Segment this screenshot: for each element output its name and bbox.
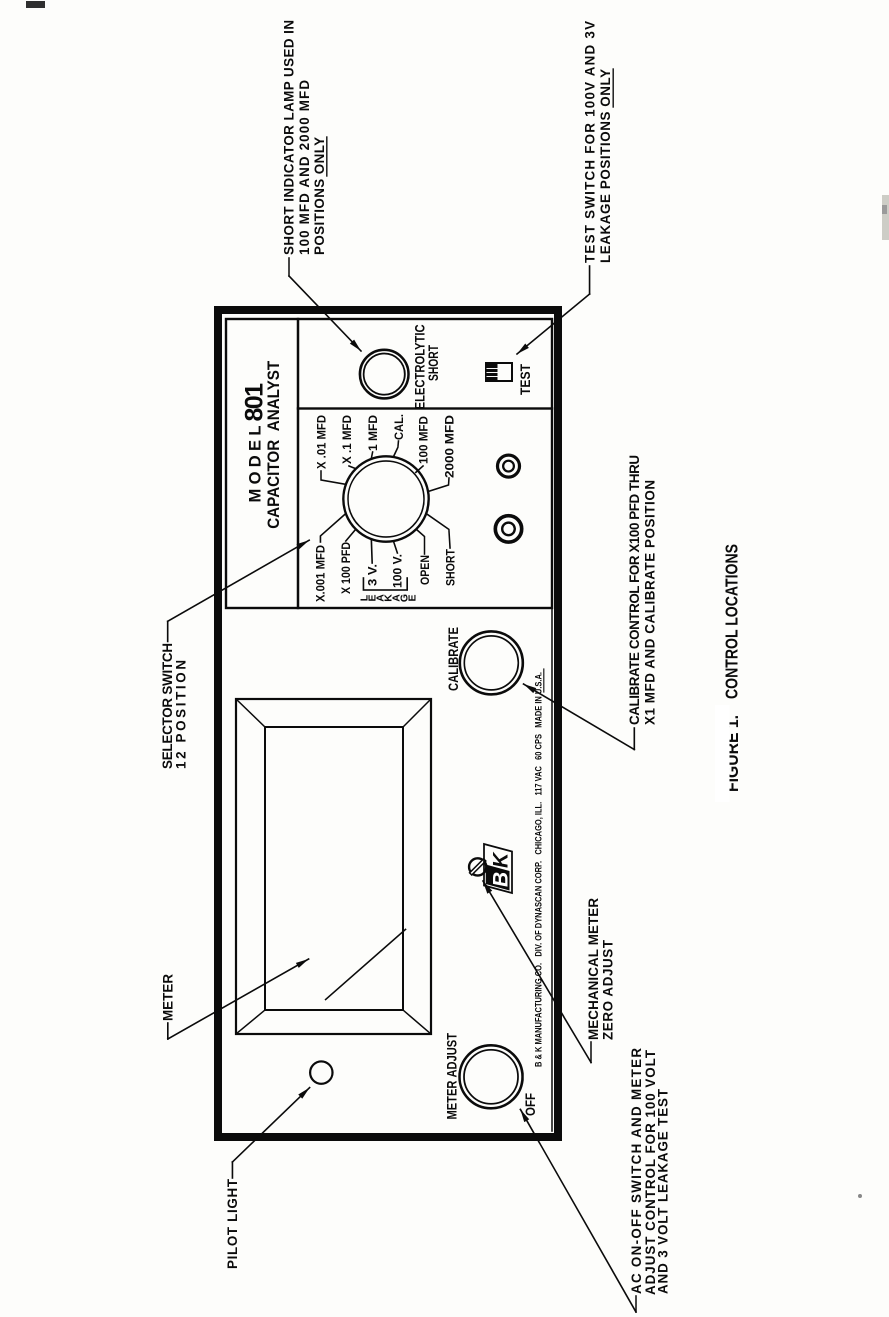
svg-text:1 MFD: 1 MFD xyxy=(366,415,380,451)
svg-text:12 POSITION: 12 POSITION xyxy=(174,660,189,769)
svg-text:AND 3 VOLT LEAKAGE TEST: AND 3 VOLT LEAKAGE TEST xyxy=(656,1088,671,1294)
svg-text:X 100 PFD: X 100 PFD xyxy=(339,542,353,594)
svg-text:CALIBRATE CONTROL FOR X100 PFD: CALIBRATE CONTROL FOR X100 PFD THRU xyxy=(627,455,642,725)
svg-text:K: K xyxy=(490,851,513,868)
svg-text:X .1 MFD: X .1 MFD xyxy=(340,415,354,464)
svg-text:TEST: TEST xyxy=(518,363,533,395)
svg-text:E: E xyxy=(407,594,419,601)
svg-text:B & K MANUFACTURING CO. DIV.: B & K MANUFACTURING CO. DIV. OF DYNASCAN… xyxy=(534,672,544,1067)
svg-text:3 V.: 3 V. xyxy=(366,564,380,586)
svg-text:2000 MFD: 2000 MFD xyxy=(442,415,456,478)
svg-text:OFF: OFF xyxy=(522,1093,538,1116)
svg-text:SHORT: SHORT xyxy=(443,548,457,586)
svg-text:CAL.: CAL. xyxy=(392,414,406,440)
svg-text:X1 MFD AND CALIBRATE POSITION: X1 MFD AND CALIBRATE POSITION xyxy=(643,480,658,725)
svg-text:TEST SWITCH FOR 100V AND 3V: TEST SWITCH FOR 100V AND 3V xyxy=(582,21,597,263)
svg-text:AC ON-OFF SWITCH AND METER: AC ON-OFF SWITCH AND METER xyxy=(629,1048,644,1294)
svg-text:X .01 MFD: X .01 MFD xyxy=(314,415,328,469)
svg-text:MODEL: MODEL xyxy=(246,426,265,503)
svg-text:PILOT LIGHT: PILOT LIGHT xyxy=(225,1178,240,1269)
svg-text:100 MFD: 100 MFD xyxy=(416,416,430,464)
svg-text:ZERO ADJUST: ZERO ADJUST xyxy=(600,939,615,1040)
svg-text:METER: METER xyxy=(161,974,176,1021)
svg-text:METER ADJUST: METER ADJUST xyxy=(444,1033,460,1120)
svg-text:CALIBRATE: CALIBRATE xyxy=(445,627,461,691)
svg-text:B: B xyxy=(490,872,513,887)
svg-text:SHORT INDICATOR LAMP USED IN: SHORT INDICATOR LAMP USED IN xyxy=(281,20,296,255)
svg-text:100 V.: 100 V. xyxy=(391,554,405,588)
svg-text:100 MFD AND 2000 MFD: 100 MFD AND 2000 MFD xyxy=(297,80,312,255)
svg-text:POSITIONS ONLY: POSITIONS ONLY xyxy=(312,137,327,255)
svg-text:MECHANICAL METER: MECHANICAL METER xyxy=(586,898,601,1040)
svg-text:OPEN: OPEN xyxy=(418,555,432,585)
svg-text:LEAKAGE POSITIONS ONLY: LEAKAGE POSITIONS ONLY xyxy=(598,69,613,263)
svg-text:CONTROL LOCATIONS: CONTROL LOCATIONS xyxy=(722,544,742,699)
svg-text:X.001 MFD: X.001 MFD xyxy=(314,545,328,602)
svg-text:CAPACITOR ANALYST: CAPACITOR ANALYST xyxy=(264,361,283,529)
svg-text:SHORT: SHORT xyxy=(426,344,441,381)
